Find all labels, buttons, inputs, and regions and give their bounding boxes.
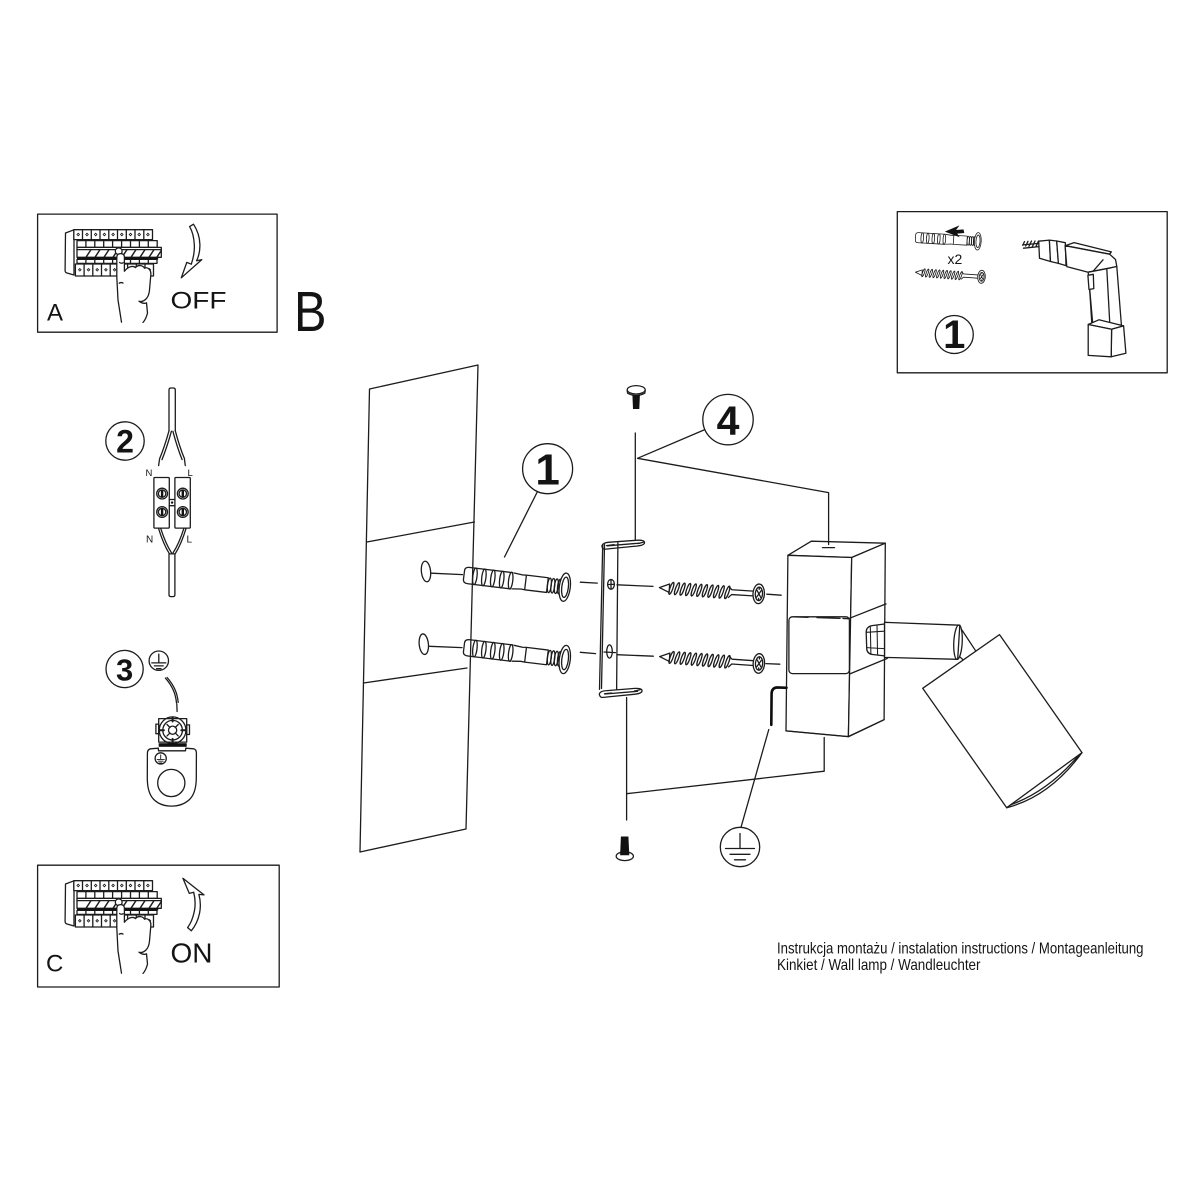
svg-text:2: 2 [116,424,134,460]
svg-text:C: C [46,951,63,978]
svg-text:L: L [187,535,193,546]
svg-text:OFF: OFF [171,288,227,315]
svg-text:Kinkiet / Wall lamp / Wandleuc: Kinkiet / Wall lamp / Wandleuchter [777,957,981,974]
svg-text:x2: x2 [948,251,963,267]
svg-text:N: N [146,468,153,479]
svg-text:4: 4 [717,398,740,444]
svg-text:A: A [47,300,63,327]
svg-text:3: 3 [116,653,133,688]
svg-text:N: N [146,535,153,546]
svg-text:1: 1 [535,446,559,495]
svg-text:ON: ON [171,938,213,969]
svg-text:1: 1 [943,313,965,357]
svg-text:B: B [294,280,327,343]
svg-text:Instrukcja montażu / instalati: Instrukcja montażu / instalation instruc… [777,941,1144,958]
